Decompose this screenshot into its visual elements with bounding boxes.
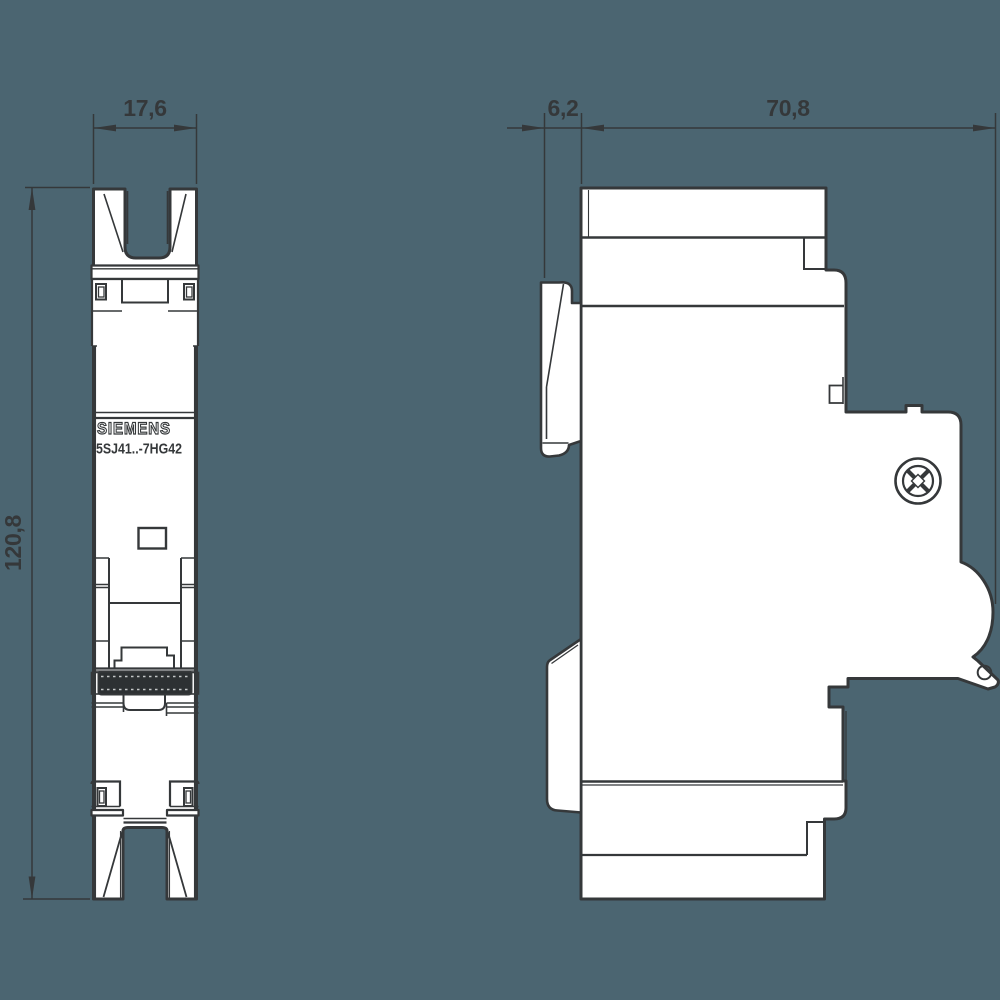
- terminal-screw-icon: [896, 459, 941, 504]
- toggle-switch: [99, 672, 192, 695]
- brand-label: SIEMENS: [97, 420, 171, 438]
- dimension-label-rail-offset: 6,2: [547, 95, 578, 121]
- model-label: 5SJ41..-7HG42: [96, 441, 182, 458]
- top-collar: [92, 266, 199, 280]
- dimension-label-front-height: 120,8: [0, 514, 26, 571]
- upper-terminal-shell: [92, 279, 198, 346]
- dimension-label-depth: 70,8: [766, 95, 810, 121]
- dimension-drawing: SIEMENS 5SJ41..-7HG42: [0, 0, 1000, 1000]
- front-view: SIEMENS 5SJ41..-7HG42: [92, 189, 199, 899]
- din-foot: [547, 639, 581, 813]
- lower-collar-right: [167, 810, 199, 816]
- dimension-label-front-width: 17,6: [123, 95, 167, 121]
- lower-collar-left: [92, 810, 124, 816]
